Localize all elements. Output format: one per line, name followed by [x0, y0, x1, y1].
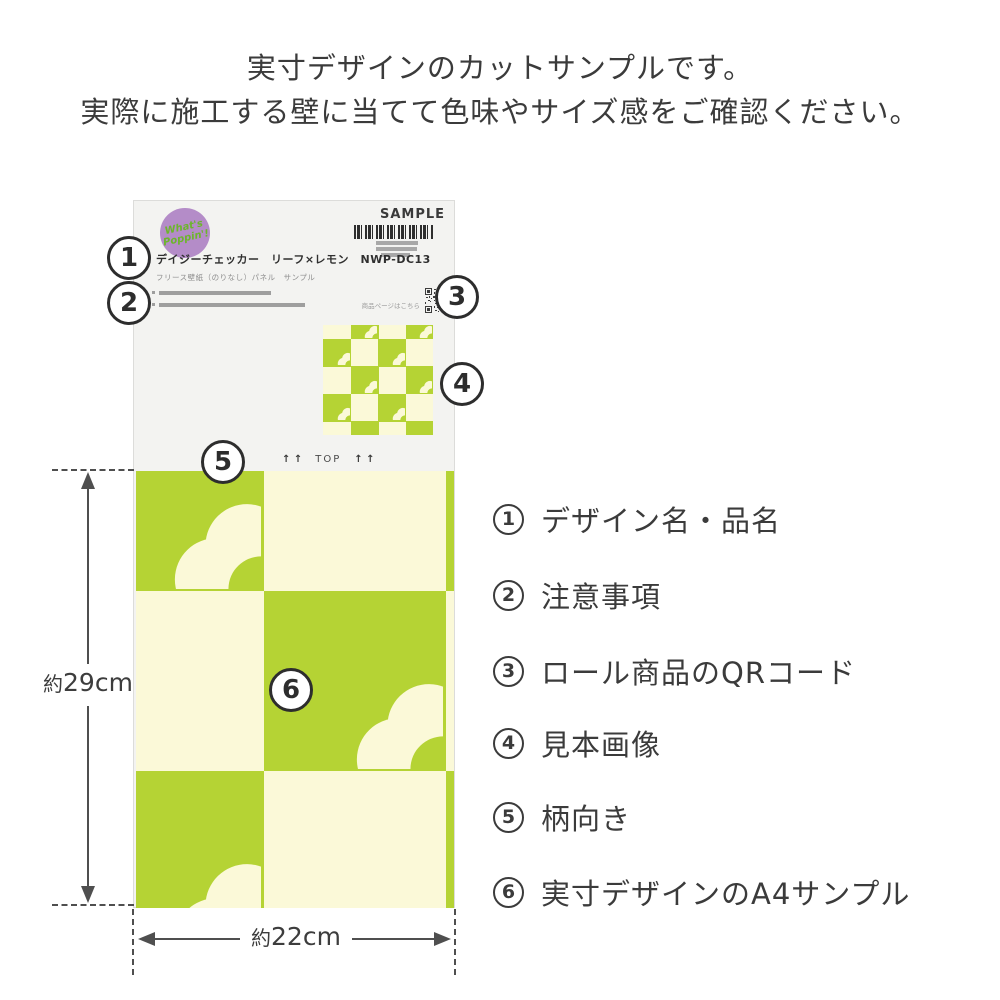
- daisy-flower-icon: [407, 368, 432, 393]
- legend-number-6: 6: [493, 877, 524, 908]
- pattern-direction-indicator: ↑ ↑ TOP ↑ ↑: [282, 454, 375, 465]
- legend-number-3: 3: [493, 656, 524, 687]
- intro-line-2: 実際に施工する壁に当てて色味やサイズ感をご確認ください。: [0, 90, 1000, 134]
- page: 実寸デザインのカットサンプルです。 実際に施工する壁に当てて色味やサイズ感をご確…: [0, 0, 1000, 1000]
- note-placeholder-bar: [159, 303, 305, 307]
- daisy-flower-icon: [380, 395, 405, 420]
- legend-number-1: 1: [493, 504, 524, 535]
- width-value: 22cm: [271, 922, 341, 951]
- pattern-cell: [323, 339, 351, 367]
- daisy-flower-icon: [136, 773, 261, 908]
- width-dimension-line: [155, 938, 240, 940]
- pattern-cell: [446, 471, 454, 591]
- legend-item-pattern-direction: 5 柄向き: [493, 800, 631, 834]
- legend-item-notes: 2 注意事項: [493, 578, 661, 612]
- legend-item-qr-code: 3 ロール商品のQRコード: [493, 654, 856, 688]
- pattern-cell: [351, 421, 379, 435]
- legend-item-a4-sample: 6 実寸デザインのA4サンプル: [493, 875, 910, 909]
- legend-item-sample-image: 4 見本画像: [493, 726, 661, 760]
- up-arrows-icon: ↑ ↑: [354, 454, 374, 465]
- legend-label: 実寸デザインのA4サンプル: [541, 871, 910, 913]
- marker-4: 4: [440, 362, 484, 406]
- daisy-flower-icon: [352, 325, 377, 338]
- height-dimension-tick-bottom: [52, 904, 134, 906]
- width-dimension-label: 約22cm: [240, 922, 352, 951]
- note-placeholder-bar: [159, 291, 271, 295]
- marker-2: 2: [107, 281, 151, 325]
- barcode-caption-bar: [376, 241, 418, 245]
- daisy-flower-icon: [380, 340, 405, 365]
- height-dimension-line: [87, 487, 89, 664]
- marker-3: 3: [435, 275, 479, 319]
- daisy-flower-icon: [136, 471, 261, 589]
- width-dimension-tick-right: [454, 909, 456, 975]
- legend-label: 柄向き: [541, 796, 631, 838]
- height-value: 29cm: [63, 668, 133, 697]
- width-arrow-right-icon: [434, 932, 451, 946]
- intro-line-1: 実寸デザインのカットサンプルです。: [0, 46, 1000, 90]
- pattern-cell: [378, 394, 406, 422]
- pattern-cell: [136, 471, 264, 591]
- height-arrow-down-icon: [81, 886, 95, 903]
- product-title: デイジーチェッカー リーフ×レモン NWP-DC13: [156, 251, 436, 267]
- width-approx-prefix: 約: [251, 926, 271, 950]
- qr-label: 商品ページはこちら: [304, 300, 420, 310]
- pattern-preview: [323, 325, 433, 435]
- product-subtitle: フリース壁紙（のりなし）パネル サンプル: [156, 272, 315, 283]
- barcode-icon: [354, 225, 434, 239]
- up-arrows-icon: ↑ ↑: [282, 454, 302, 465]
- pattern-cell: [406, 325, 434, 339]
- pattern-cell: [351, 325, 379, 339]
- daisy-flower-icon: [352, 368, 377, 393]
- pattern-cell: [378, 339, 406, 367]
- height-dimension-tick-top: [52, 469, 134, 471]
- legend-number-5: 5: [493, 802, 524, 833]
- sample-card: What's Poppin'! SAMPLE デイジーチェッカー リーフ×レモン…: [133, 200, 455, 908]
- sample-label: SAMPLE: [380, 207, 445, 222]
- top-label: TOP: [315, 454, 341, 465]
- daisy-flower-icon: [325, 340, 350, 365]
- height-dimension-label: 約29cm: [40, 668, 136, 697]
- legend-number-4: 4: [493, 728, 524, 759]
- daisy-flower-icon: [407, 423, 432, 436]
- pattern-cell: [136, 771, 264, 908]
- marker-5: 5: [201, 440, 245, 484]
- width-dimension-tick-left: [132, 909, 134, 975]
- legend-label: ロール商品のQRコード: [541, 650, 856, 692]
- height-approx-prefix: 約: [43, 672, 63, 696]
- width-arrow-left-icon: [138, 932, 155, 946]
- pattern-cell: [406, 421, 434, 435]
- pattern-cell: [351, 366, 379, 394]
- marker-1: 1: [107, 236, 151, 280]
- daisy-flower-icon: [352, 423, 377, 436]
- intro-text: 実寸デザインのカットサンプルです。 実際に施工する壁に当てて色味やサイズ感をご確…: [0, 46, 1000, 134]
- legend-number-2: 2: [493, 580, 524, 611]
- daisy-flower-icon: [449, 773, 454, 908]
- legend-label: 注意事項: [541, 574, 661, 616]
- marker-6: 6: [269, 668, 313, 712]
- daisy-flower-icon: [325, 395, 350, 420]
- pattern-cell: [446, 771, 454, 908]
- daisy-flower-icon: [407, 325, 432, 338]
- legend-item-design-name: 1 デザイン名・品名: [493, 502, 781, 536]
- legend-label: デザイン名・品名: [541, 498, 781, 540]
- pattern-cell: [406, 366, 434, 394]
- width-dimension-line: [352, 938, 434, 940]
- pattern-cell: [323, 394, 351, 422]
- height-dimension-line: [87, 706, 89, 889]
- legend-label: 見本画像: [541, 722, 661, 764]
- daisy-flower-icon: [449, 471, 454, 589]
